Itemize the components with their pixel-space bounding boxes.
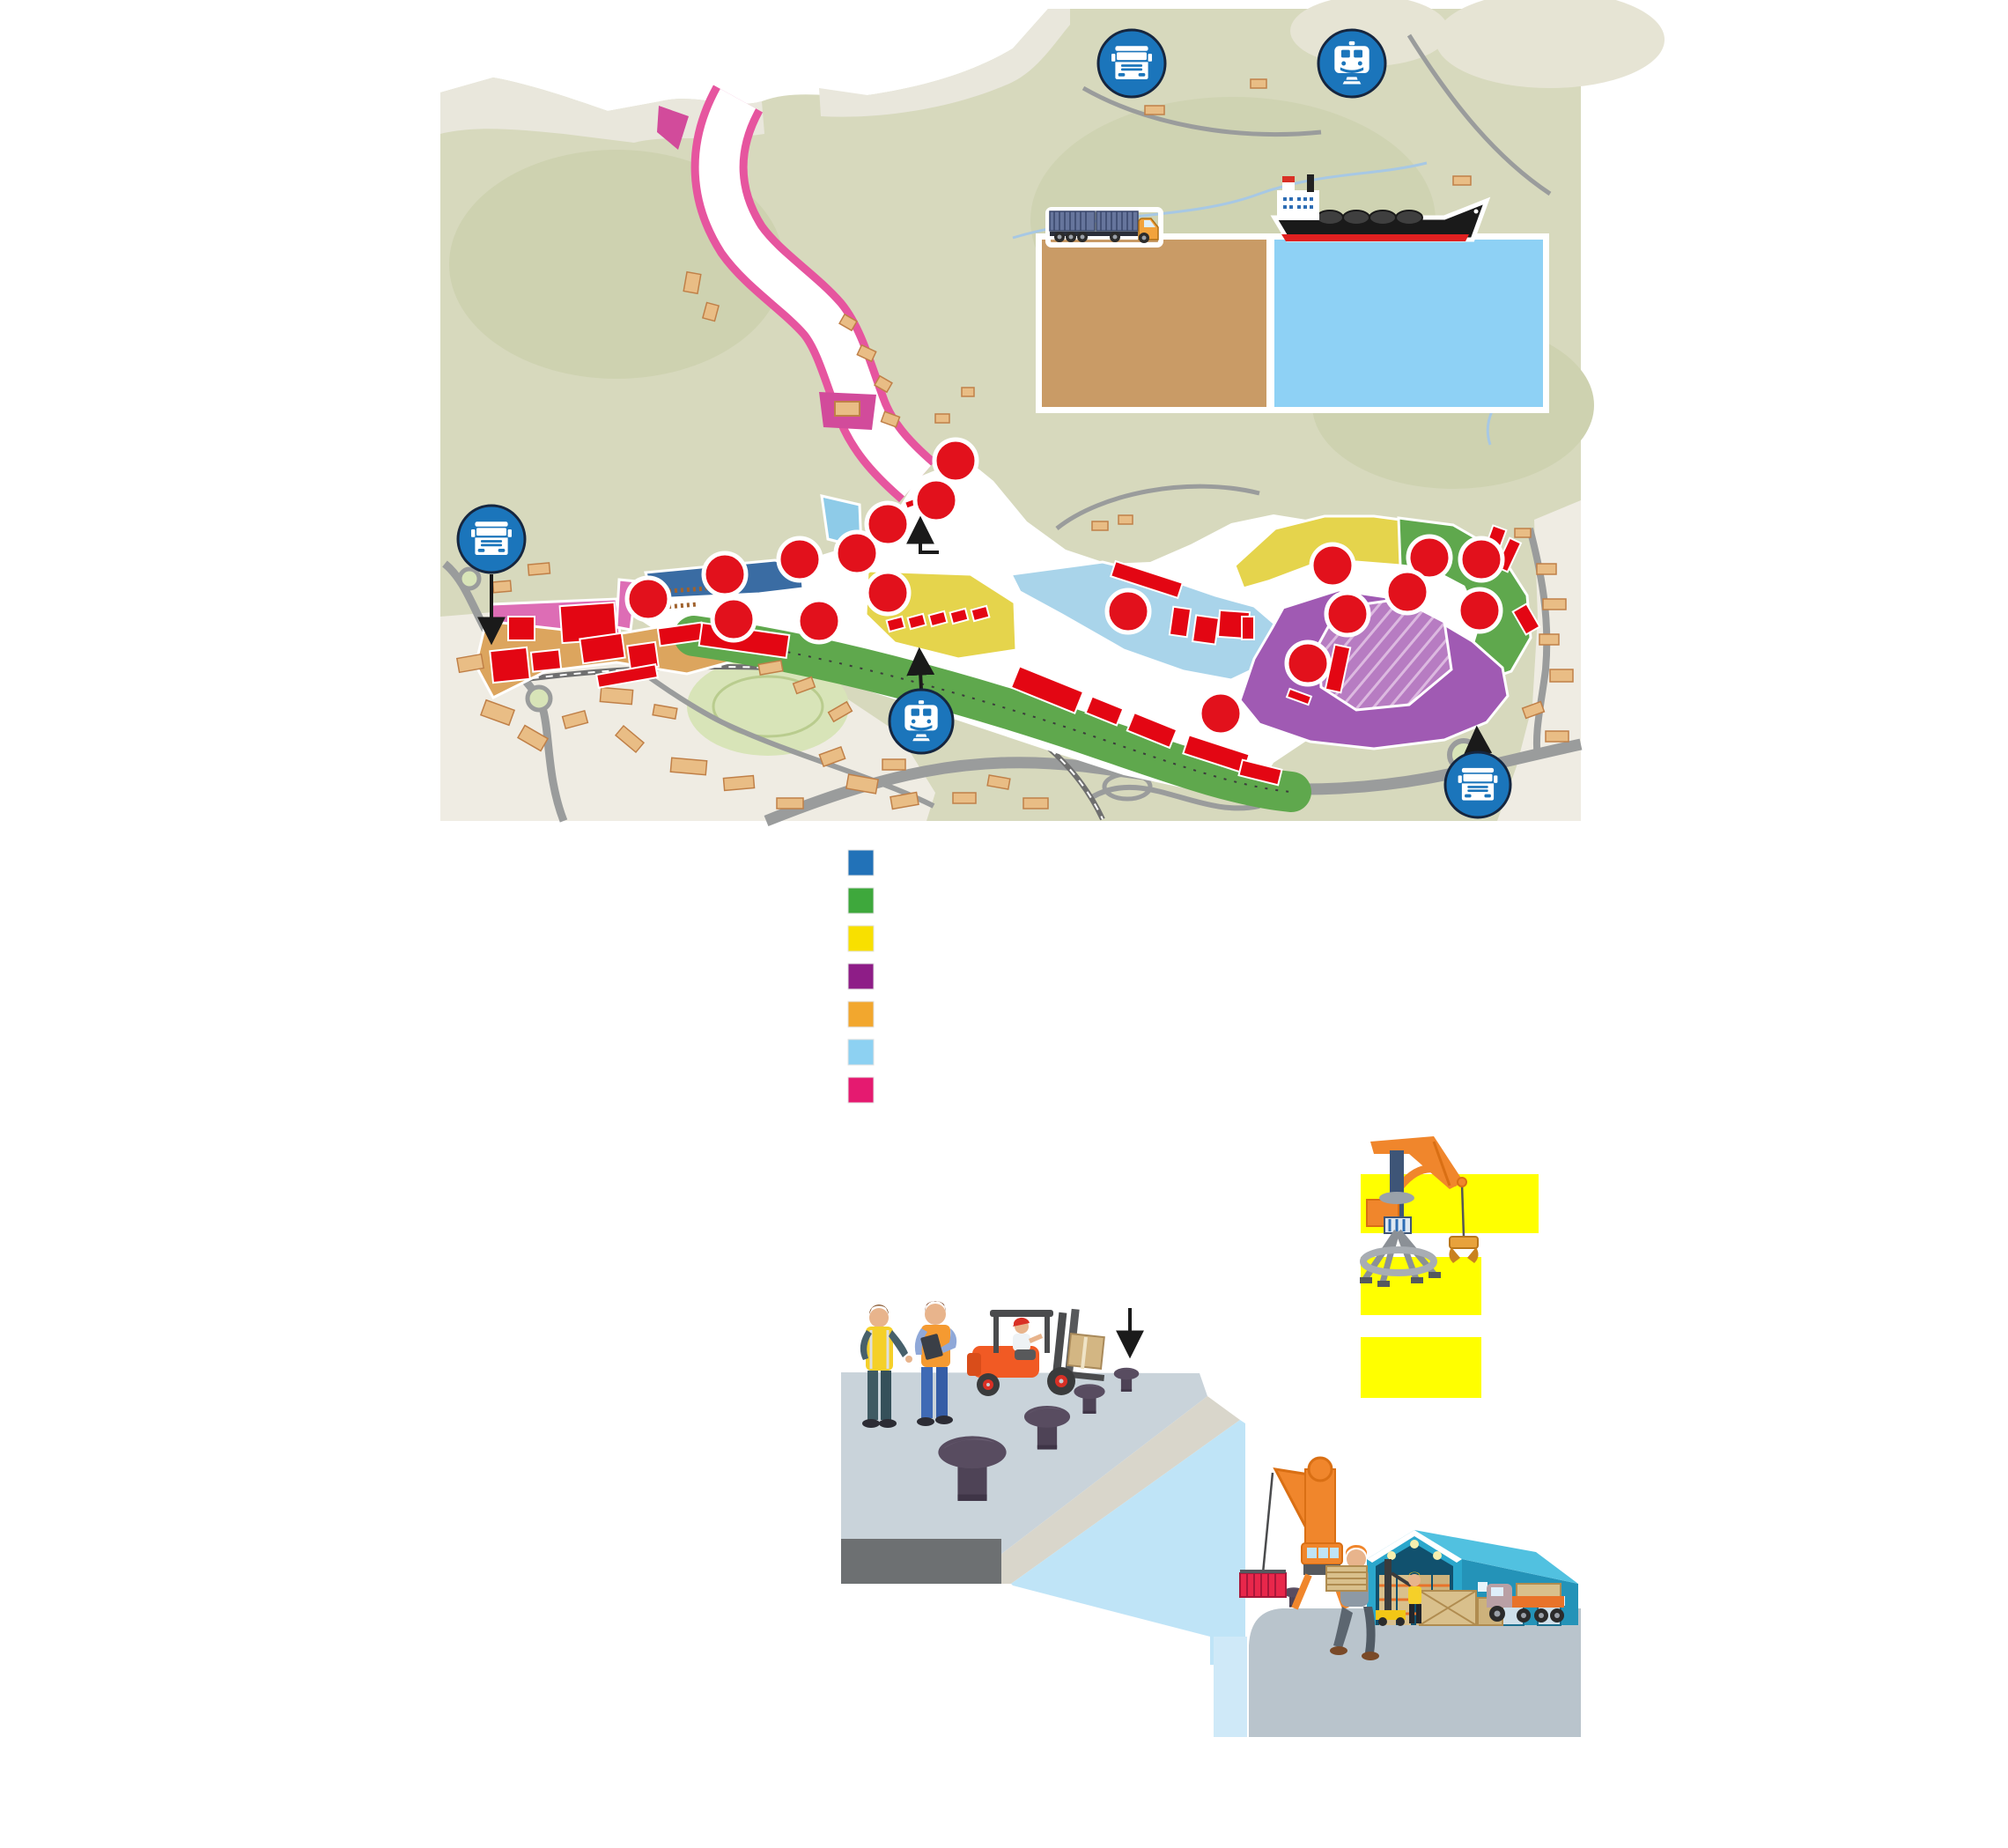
- town-building: [528, 563, 550, 575]
- map-marker: [1311, 544, 1354, 587]
- map-marker: [1386, 571, 1428, 613]
- town-building: [1145, 106, 1164, 115]
- port-building: [508, 617, 535, 640]
- legend-lightblue: [848, 1039, 874, 1065]
- legend-purple: [848, 964, 874, 989]
- town-building: [935, 414, 949, 423]
- town-building: [683, 272, 701, 293]
- quay-front-face: [841, 1539, 1001, 1584]
- flatbed-truck: [1487, 1584, 1564, 1623]
- town-building: [670, 758, 706, 774]
- port-building: [1242, 617, 1254, 639]
- map-marker: [779, 538, 821, 580]
- town-building: [953, 793, 976, 803]
- map-marker: [1107, 590, 1149, 632]
- town-building: [723, 776, 754, 791]
- warehouse-quay: [1249, 1608, 1581, 1737]
- town-building: [493, 580, 512, 593]
- town-building: [1453, 176, 1471, 185]
- town-building: [1515, 529, 1531, 537]
- port-building: [1170, 607, 1191, 637]
- warehouse-scene: [1214, 1458, 1581, 1737]
- town-building: [1251, 79, 1266, 88]
- map-marker: [798, 600, 840, 642]
- town-building: [1550, 669, 1573, 682]
- town-building: [1023, 798, 1048, 809]
- pointer-arrow: [1477, 731, 1478, 750]
- highlight-box: [1361, 1337, 1481, 1398]
- port-building: [1192, 615, 1219, 644]
- land-sea-panels: [1036, 174, 1549, 413]
- quay-scene: [841, 1301, 1245, 1665]
- map-marker: [1200, 692, 1242, 735]
- warehouse-water: [1214, 1637, 1247, 1737]
- legend-green: [848, 888, 874, 913]
- town-building: [600, 687, 632, 704]
- map-marker: [1326, 593, 1369, 635]
- town-building: [882, 759, 905, 770]
- port-infographic: [0, 0, 2008, 1848]
- map-marker: [867, 503, 909, 545]
- pointer-arrow: [919, 653, 921, 690]
- town-building: [1537, 564, 1556, 574]
- town-building: [1118, 515, 1133, 524]
- port-building: [531, 649, 561, 671]
- map-marker: [867, 572, 909, 614]
- map-marker: [704, 553, 746, 595]
- sea-panel: [1274, 240, 1543, 407]
- map-marker: [712, 598, 755, 640]
- map-marker: [1287, 642, 1329, 684]
- town-building: [1546, 731, 1569, 742]
- legend-blue: [848, 850, 874, 876]
- hanging-container: [1240, 1571, 1286, 1597]
- legend-orange: [848, 1002, 874, 1027]
- map-marker: [627, 578, 669, 620]
- map-marker: [915, 479, 957, 521]
- town-building: [1543, 599, 1566, 610]
- town-building: [1092, 521, 1108, 530]
- map-marker: [1460, 538, 1502, 580]
- port-building: [580, 633, 624, 663]
- legend: [848, 850, 874, 1103]
- legend-yellow: [848, 926, 874, 951]
- map-marker: [1458, 589, 1501, 632]
- port-building: [490, 647, 530, 683]
- legend-pink: [848, 1077, 874, 1103]
- map-marker: [934, 440, 977, 482]
- town-building: [962, 388, 974, 396]
- town-building: [1539, 634, 1559, 645]
- land-panel: [1042, 240, 1266, 407]
- town-building: [777, 798, 803, 809]
